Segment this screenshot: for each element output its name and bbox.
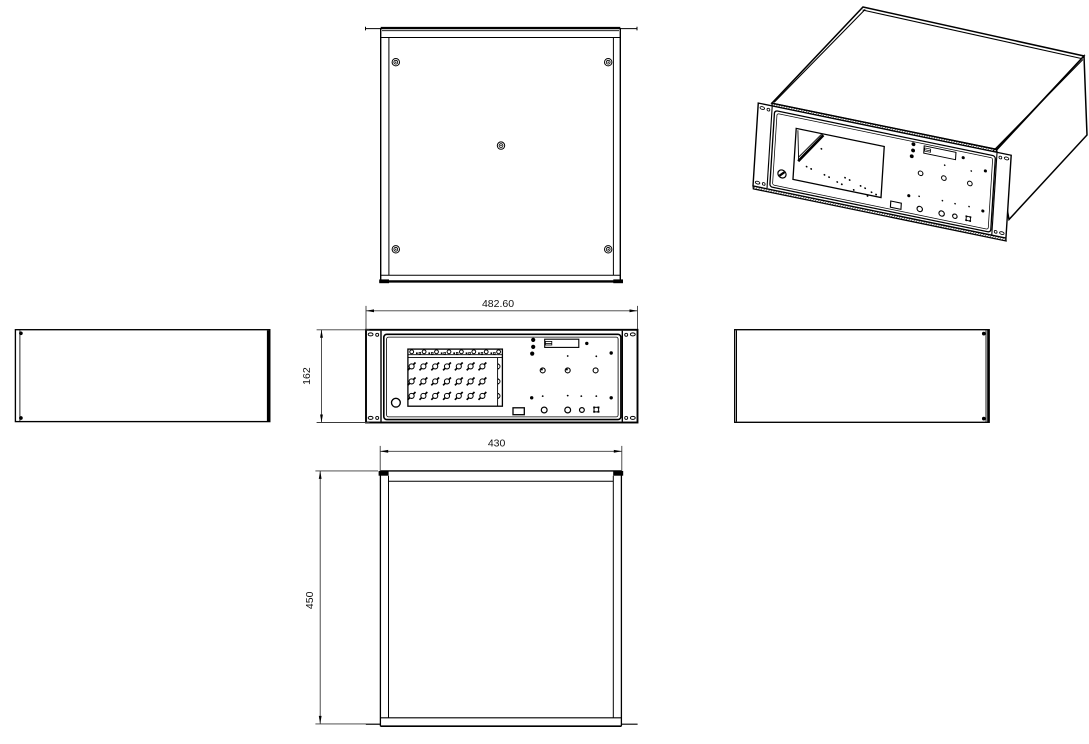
svg-text:450: 450: [304, 591, 316, 609]
svg-text:482.60: 482.60: [482, 298, 514, 310]
svg-text:430: 430: [488, 437, 506, 449]
svg-text:162: 162: [301, 367, 313, 385]
